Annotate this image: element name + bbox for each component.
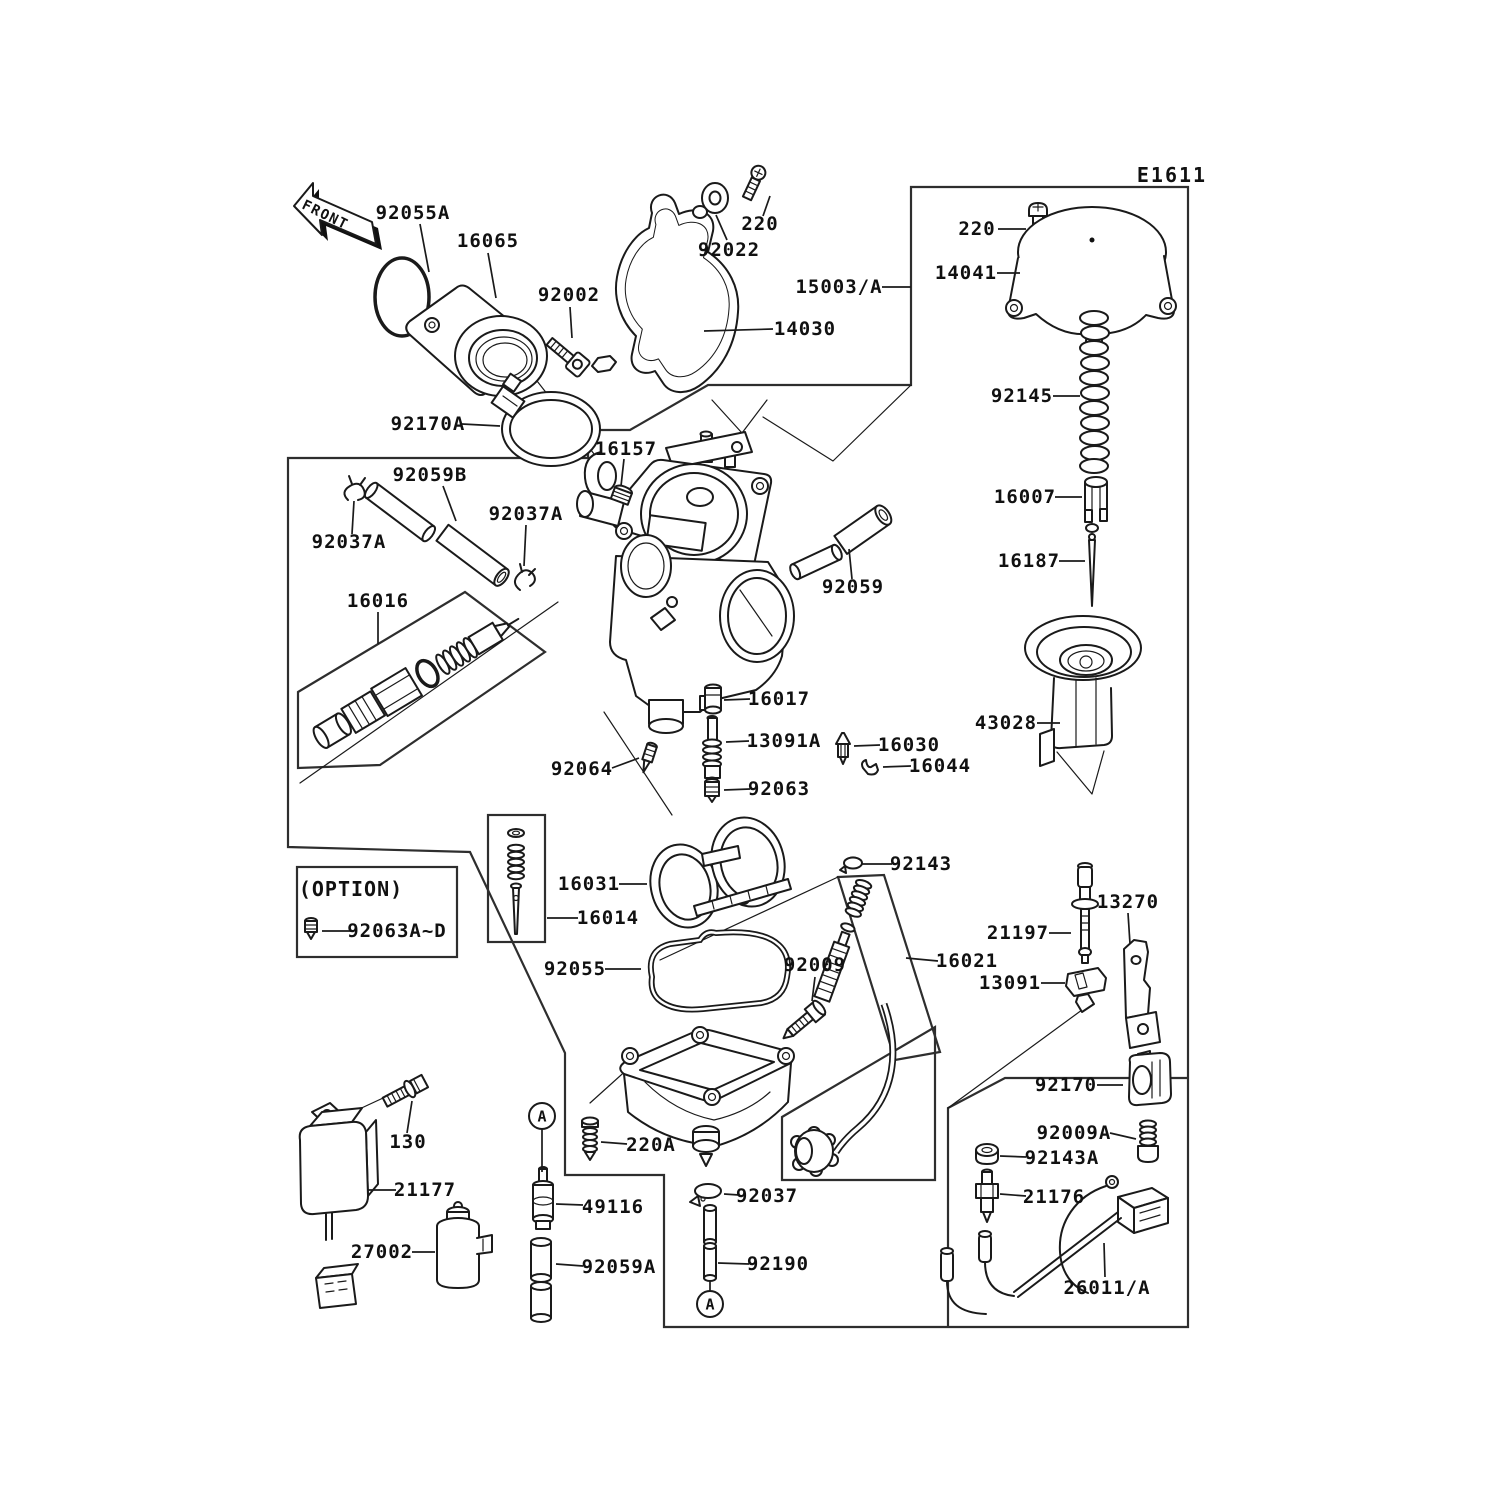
cable-knob [791, 1127, 838, 1176]
part-label-16157: 16157 [595, 438, 657, 460]
part-label-92143: 92143 [890, 853, 952, 875]
tubes-92059A [531, 1238, 551, 1322]
part-label-16065: 16065 [457, 230, 519, 252]
part-label-16031: 16031 [558, 873, 620, 895]
needle-jet-13091A [703, 716, 721, 783]
bowl-gasket-92055 [651, 932, 788, 1009]
part-label-14041: 14041 [935, 262, 997, 284]
leader-130 [407, 1101, 412, 1133]
part-label-16016: 16016 [347, 590, 409, 612]
sensor-21176 [976, 1170, 998, 1223]
valve-27002 [437, 1202, 492, 1288]
part-label-21176: 21176 [1023, 1186, 1085, 1208]
leader-92059B [443, 486, 456, 521]
detail-marker-letter-1: A [705, 1296, 714, 1314]
part-label-26011/A: 26011/A [1063, 1277, 1150, 1299]
part-label-16187: 16187 [998, 550, 1060, 572]
part-label-16021: 16021 [936, 950, 998, 972]
relay-21177 [300, 1103, 378, 1308]
part-label-92037A: 92037A [489, 503, 564, 525]
leader-16044 [883, 766, 911, 767]
diagram-code: E1611 [1137, 163, 1207, 187]
part-label-27002: 27002 [351, 1241, 413, 1263]
part-label-16014: 16014 [577, 907, 639, 929]
clamp-92170A [492, 374, 600, 466]
leader-92064 [612, 758, 639, 768]
option-label: (OPTION) [299, 877, 403, 901]
option-screw-92063AD [305, 918, 317, 939]
leader-92059 [849, 549, 852, 579]
jet-holder-16017 [705, 685, 721, 714]
part-label-92055A: 92055A [376, 202, 451, 224]
screw-92009A [1138, 1121, 1158, 1163]
leader-92002 [570, 307, 572, 338]
leader-92170A [462, 424, 500, 426]
part-label-92064: 92064 [551, 758, 613, 780]
holder-13091 [1066, 968, 1106, 1012]
exploded-parts-diagram: FRONT [0, 0, 1500, 1500]
detail-marker-letter-0: A [537, 1108, 546, 1126]
part-label-220: 220 [958, 218, 995, 240]
clip-92037A-right [515, 564, 535, 590]
jet-needle-16187 [1086, 524, 1098, 606]
leader-92059A [556, 1264, 583, 1266]
front-arrow-icon: FRONT [294, 183, 382, 250]
bracket-13270 [1124, 940, 1160, 1048]
leader-49116 [556, 1204, 583, 1205]
part-labels-layer: 92055A1606592002920222201403015003/A9217… [312, 196, 1159, 1317]
clamp-92143 [840, 857, 862, 873]
leader-13270 [1128, 913, 1130, 944]
parts-diagram-page: FRONT [0, 0, 1500, 1500]
leader-92037A [524, 525, 526, 566]
plunger-49116 [533, 1167, 553, 1229]
part-label-49116: 49116 [582, 1196, 644, 1218]
plunger-21197 [1072, 863, 1098, 963]
part-label-15003/A: 15003/A [795, 276, 882, 298]
screw-220-top [740, 163, 767, 201]
leader-16157 [621, 459, 624, 486]
screw-92002 [543, 333, 590, 377]
leader-92009A [1110, 1133, 1136, 1139]
part-label-92002: 92002 [538, 284, 600, 306]
part-label-92063A~D: 92063A~D [347, 920, 447, 942]
float-pin-92037 [690, 1184, 721, 1206]
part-label-92009: 92009 [784, 954, 846, 976]
part-label-92170: 92170 [1035, 1074, 1097, 1096]
leader-16030 [854, 745, 880, 746]
part-label-43028: 43028 [975, 712, 1037, 734]
valve-16030 [836, 733, 850, 764]
leader-92009 [812, 977, 815, 1001]
part-label-92059: 92059 [822, 576, 884, 598]
part-label-13091: 13091 [979, 972, 1041, 994]
part-label-13270: 13270 [1097, 891, 1159, 913]
air-funnels-16031 [642, 810, 794, 935]
leader-26011/A [1104, 1243, 1105, 1277]
leader-16065 [488, 253, 496, 298]
part-label-14030: 14030 [774, 318, 836, 340]
part-label-92145: 92145 [991, 385, 1053, 407]
part-label-16017: 16017 [748, 688, 810, 710]
part-label-92055: 92055 [544, 958, 606, 980]
part-label-92190: 92190 [747, 1253, 809, 1275]
part-label-130: 130 [389, 1131, 426, 1153]
leader-220A [601, 1142, 627, 1144]
part-label-16007: 16007 [994, 486, 1056, 508]
part-label-220: 220 [741, 213, 778, 235]
part-label-92059B: 92059B [393, 464, 468, 486]
part-label-21177: 21177 [394, 1179, 456, 1201]
tubes-92059 [788, 503, 894, 581]
part-label-92059A: 92059A [582, 1256, 657, 1278]
part-label-92022: 92022 [698, 239, 760, 261]
leader-92190 [718, 1263, 749, 1264]
leader-92022 [716, 215, 727, 240]
carburetor-body [577, 356, 794, 733]
bolt-130 [381, 1073, 429, 1110]
part-label-92170A: 92170A [391, 413, 466, 435]
needle-retainer-16007 [1085, 477, 1107, 522]
leader-92143A [1000, 1156, 1026, 1157]
diaphragm-43028 [1025, 616, 1141, 766]
leader-92037A [352, 501, 354, 534]
clip-16044 [862, 760, 878, 775]
spring-92145 [1080, 311, 1109, 473]
part-label-220A: 220A [626, 1134, 676, 1156]
part-label-92143A: 92143A [1025, 1147, 1100, 1169]
part-label-21197: 21197 [987, 922, 1049, 944]
part-label-92009A: 92009A [1037, 1122, 1112, 1144]
leader-13091A [726, 741, 749, 742]
tube-92190 [704, 1205, 716, 1281]
part-label-92063: 92063 [748, 778, 810, 800]
screw-220A [582, 1118, 598, 1161]
part-label-92037: 92037 [736, 1185, 798, 1207]
air-screw-92009 [778, 999, 828, 1045]
clip-92037A-left [344, 476, 365, 500]
leader-92055A [420, 224, 429, 272]
pilot-screw-assy-16016 [309, 605, 527, 753]
part-label-92037A: 92037A [312, 531, 387, 553]
leader-92063 [724, 789, 750, 790]
clamp-92170 [1129, 1051, 1171, 1105]
part-label-16030: 16030 [878, 734, 940, 756]
needle-set-16014 [508, 829, 524, 934]
part-label-13091A: 13091A [747, 730, 822, 752]
part-label-16044: 16044 [909, 755, 971, 777]
pilot-jet-92063 [705, 779, 719, 802]
leader-16017 [724, 699, 750, 700]
nut-92143A [976, 1144, 998, 1164]
